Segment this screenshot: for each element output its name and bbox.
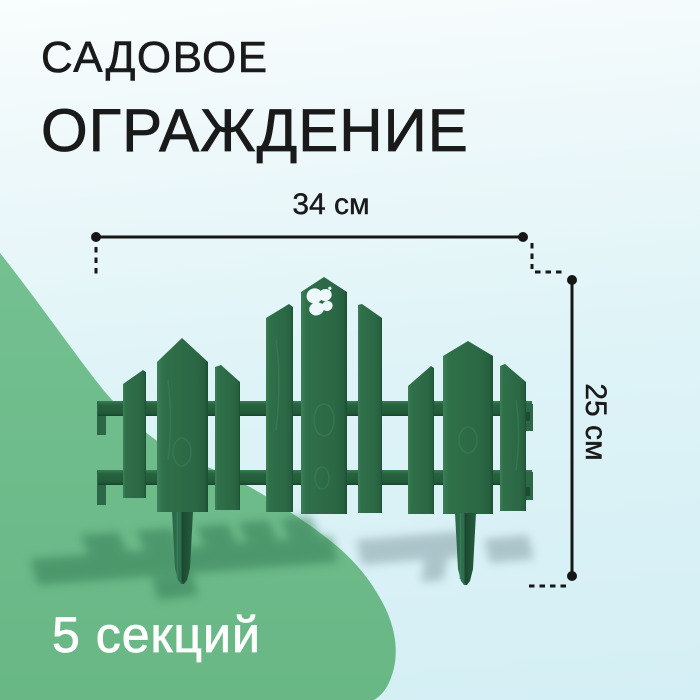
picket (500, 364, 526, 511)
picket (266, 304, 293, 512)
title-line-1: САДОВОЕ (41, 36, 269, 80)
product-card: САДОВОЕ ОГРАЖДЕНИЕ 34 см 25 см 5 секций (0, 0, 700, 700)
picket (215, 365, 240, 510)
width-dimension-label: 34 см (292, 190, 369, 220)
picket (123, 370, 146, 498)
height-dimension-label: 25 см (578, 352, 610, 492)
fence-pickets (123, 277, 526, 514)
sections-count-label: 5 секций (52, 610, 261, 660)
picket (358, 304, 382, 513)
title-line-2: ОГРАЖДЕНИЕ (41, 101, 469, 161)
fence-shadow-on-ground (356, 531, 534, 582)
picket (157, 338, 208, 512)
picket-center (301, 277, 347, 514)
picket (408, 366, 434, 514)
